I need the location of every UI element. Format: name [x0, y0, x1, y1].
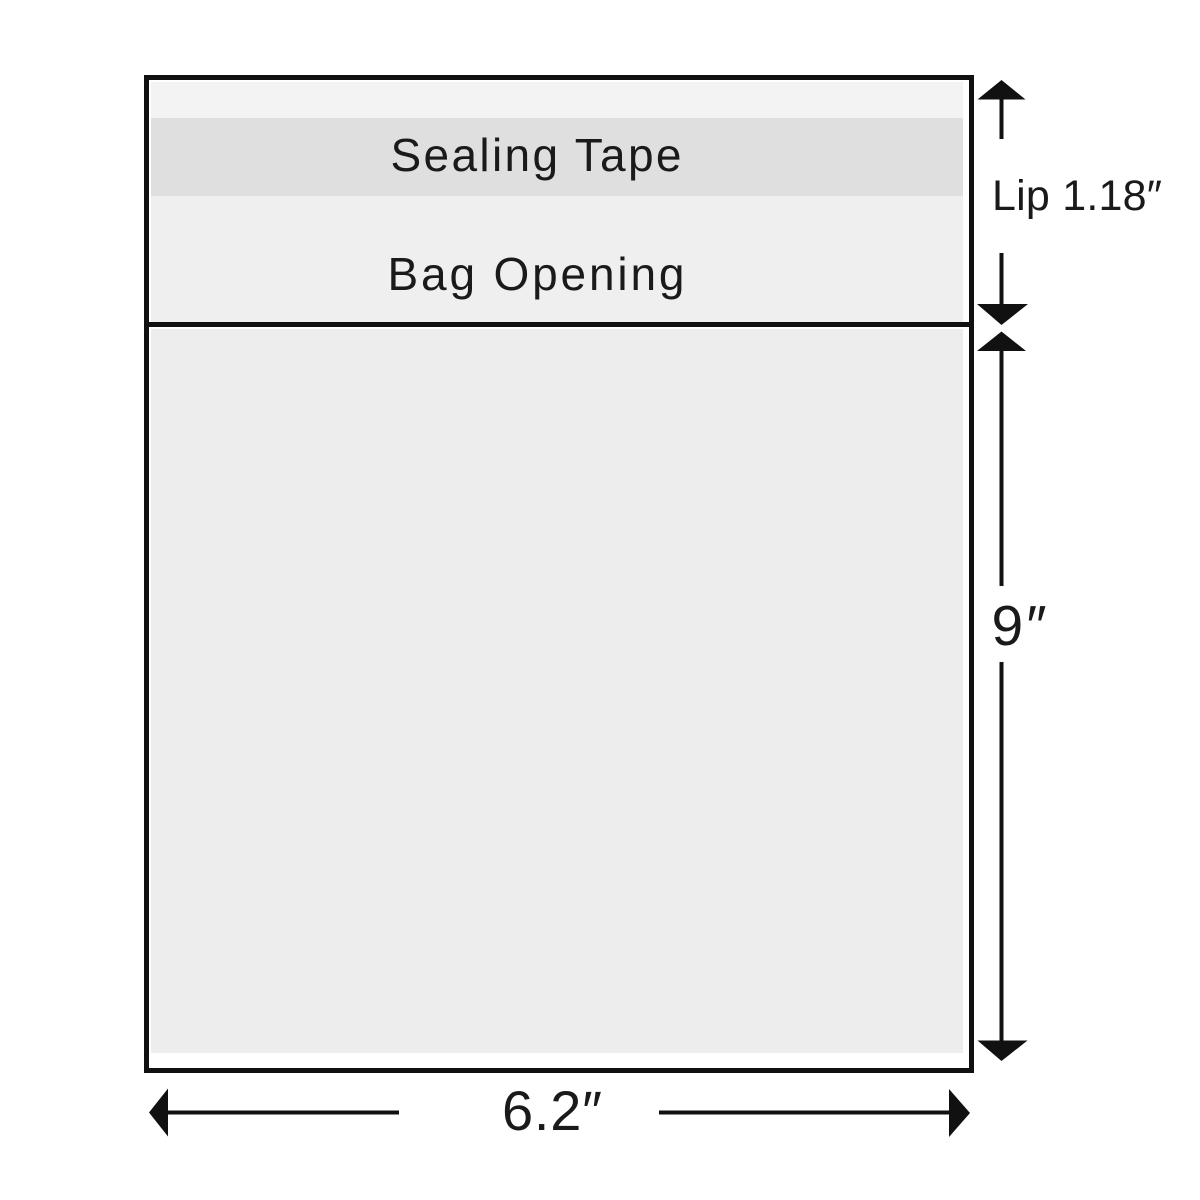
- svg-text:Lip 1.18″: Lip 1.18″: [992, 172, 1162, 220]
- svg-text:6.2″: 6.2″: [502, 1079, 602, 1142]
- svg-text:9″: 9″: [992, 594, 1047, 658]
- svg-text:Bag Opening: Bag Opening: [388, 248, 685, 300]
- svg-text:Sealing Tape: Sealing Tape: [391, 129, 682, 181]
